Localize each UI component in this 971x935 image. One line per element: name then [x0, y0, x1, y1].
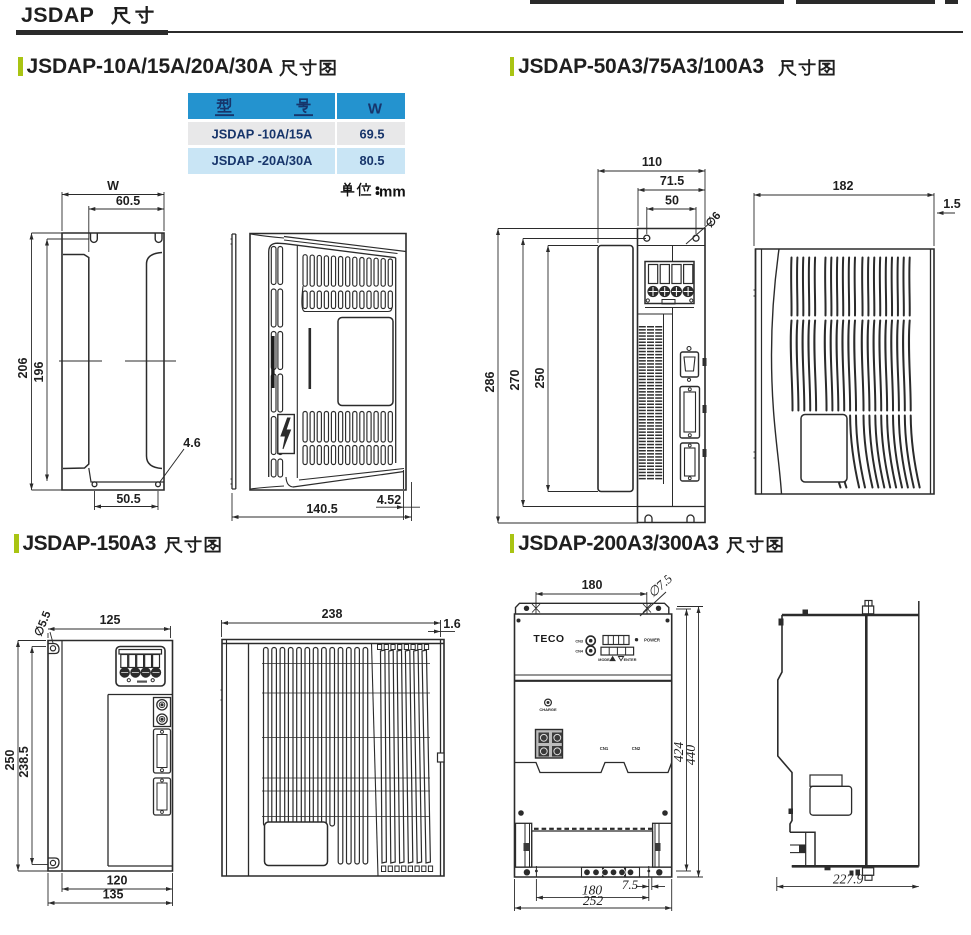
- svg-text:120: 120: [107, 874, 128, 888]
- svg-text:TECO: TECO: [533, 633, 564, 645]
- svg-text:50: 50: [665, 194, 679, 208]
- svg-text:ENTER: ENTER: [624, 658, 637, 662]
- svg-text:CN3: CN3: [575, 640, 583, 644]
- svg-text:182: 182: [833, 179, 854, 193]
- svg-text:1.5: 1.5: [943, 197, 960, 211]
- svg-text:250: 250: [533, 368, 547, 389]
- svg-text:140.5: 140.5: [306, 502, 337, 516]
- svg-text:60.5: 60.5: [116, 194, 140, 208]
- svg-text:W: W: [368, 101, 383, 118]
- svg-text:80.5: 80.5: [359, 153, 384, 168]
- svg-text:71.5: 71.5: [660, 174, 684, 188]
- svg-text:286: 286: [483, 372, 497, 393]
- svg-text:238.5: 238.5: [17, 746, 31, 777]
- svg-text:MODE: MODE: [598, 658, 610, 662]
- svg-text:252: 252: [583, 893, 604, 908]
- svg-text:270: 270: [508, 370, 522, 391]
- svg-text:JSDAP -20A/30A: JSDAP -20A/30A: [211, 153, 312, 168]
- svg-text:196: 196: [32, 362, 46, 383]
- svg-text:7.5: 7.5: [622, 877, 639, 892]
- svg-text:227.9: 227.9: [833, 872, 864, 887]
- svg-text:4.6: 4.6: [183, 436, 200, 450]
- svg-text:250: 250: [3, 750, 17, 771]
- svg-text:125: 125: [100, 613, 121, 627]
- svg-text:4.52: 4.52: [377, 493, 401, 507]
- svg-text:206: 206: [16, 358, 30, 379]
- svg-text:∅7.5: ∅7.5: [645, 575, 676, 600]
- svg-text:POWER: POWER: [644, 638, 660, 643]
- svg-text:135: 135: [103, 888, 124, 902]
- svg-text:CHARGE: CHARGE: [539, 707, 557, 712]
- svg-text:69.5: 69.5: [359, 127, 384, 142]
- svg-text:CN1: CN1: [600, 746, 609, 751]
- svg-text:180: 180: [582, 578, 603, 592]
- svg-text:238: 238: [322, 608, 343, 621]
- svg-text:CN4: CN4: [575, 650, 583, 654]
- svg-text:1.6: 1.6: [443, 617, 460, 631]
- svg-text:440: 440: [683, 745, 698, 766]
- svg-text:W: W: [107, 180, 119, 193]
- svg-text:110: 110: [642, 155, 662, 169]
- svg-text:CN2: CN2: [632, 746, 641, 751]
- svg-text:JSDAP -10A/15A: JSDAP -10A/15A: [211, 127, 312, 142]
- svg-text:mm: mm: [379, 184, 406, 201]
- svg-text:∅6: ∅6: [704, 210, 724, 230]
- svg-text:50.5: 50.5: [116, 492, 140, 506]
